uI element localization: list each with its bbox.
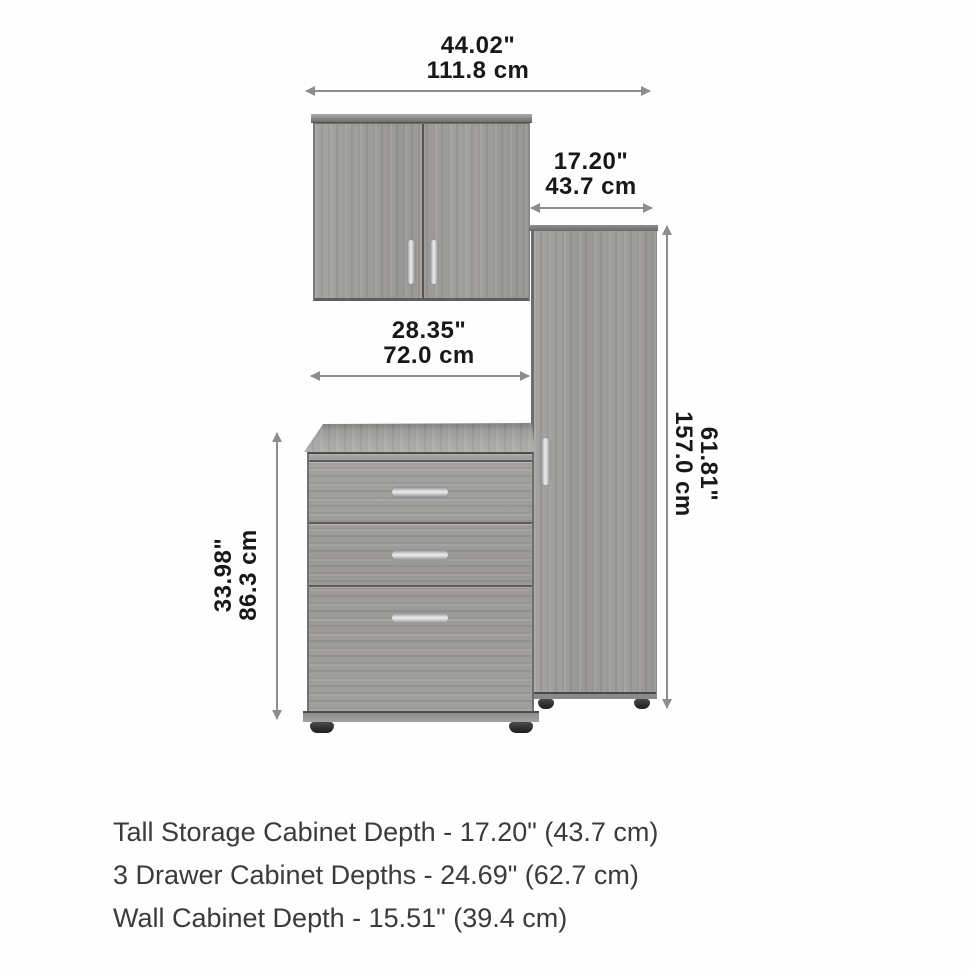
wall-cabinet-width-label: 44.02" 111.8 cm — [368, 33, 588, 83]
drawer-cabinet-height-inches: 33.98" — [211, 475, 236, 675]
drawer-divider-3 — [309, 585, 532, 587]
wall-cabinet-width-arrow-icon — [306, 90, 650, 92]
drawer-cabinet-height-arrow-icon — [276, 433, 278, 719]
drawer-cabinet-top-panel — [304, 423, 535, 452]
depth-specifications: Tall Storage Cabinet Depth - 17.20" (43.… — [113, 811, 658, 940]
tall-cabinet-base — [534, 692, 656, 699]
product-dimension-diagram: 44.02" 111.8 cm 17.20" 43.7 cm 61.81" 15… — [0, 0, 970, 971]
wall-cabinet-width-metric: 111.8 cm — [368, 58, 588, 83]
tall-cabinet-door-handle — [541, 438, 550, 485]
drawer-cabinet-plinth — [303, 711, 539, 722]
drawer-cabinet-height-metric: 86.3 cm — [236, 475, 261, 675]
drawer-1-handle — [392, 487, 448, 497]
tall-cabinet-height-metric: 157.0 cm — [671, 364, 696, 564]
drawer-cabinet-width-metric: 72.0 cm — [329, 343, 529, 368]
wall-cabinet-left-door-handle — [407, 240, 415, 284]
drawer-divider-2 — [309, 522, 532, 524]
spec-wall-cabinet-depth: Wall Cabinet Depth - 15.51" (39.4 cm) — [113, 897, 658, 940]
wall-cabinet-top-panel — [311, 114, 532, 123]
drawer-2-handle — [392, 550, 448, 560]
spec-tall-cabinet-depth: Tall Storage Cabinet Depth - 17.20" (43.… — [113, 811, 658, 854]
wall-cabinet — [313, 123, 530, 301]
wall-cabinet-right-door-handle — [430, 240, 438, 284]
drawer-cabinet-height-label: 33.98" 86.3 cm — [211, 475, 269, 675]
tall-cabinet-height-arrow-icon — [666, 226, 668, 708]
drawer-3-handle — [392, 613, 448, 623]
wall-cabinet-width-inches: 44.02" — [368, 33, 588, 58]
drawer-cabinet-width-label: 28.35" 72.0 cm — [329, 318, 529, 368]
tall-cabinet-height-inches: 61.81" — [696, 364, 721, 564]
drawer-cabinet-right-foot — [509, 722, 533, 733]
wall-cabinet-door-gap — [422, 124, 424, 298]
spec-drawer-cabinet-depth: 3 Drawer Cabinet Depths - 24.69" (62.7 c… — [113, 854, 658, 897]
drawer-cabinet-width-inches: 28.35" — [329, 318, 529, 343]
drawer-cabinet-width-arrow-icon — [311, 375, 529, 377]
tall-cabinet-left-foot — [538, 699, 554, 709]
tall-cabinet-height-label: 61.81" 157.0 cm — [663, 364, 721, 564]
drawer-cabinet-left-foot — [310, 722, 334, 733]
tall-cabinet-right-foot — [634, 699, 650, 709]
drawer-divider-1 — [309, 460, 532, 462]
tall-cabinet-width-arrow-icon — [531, 207, 652, 209]
